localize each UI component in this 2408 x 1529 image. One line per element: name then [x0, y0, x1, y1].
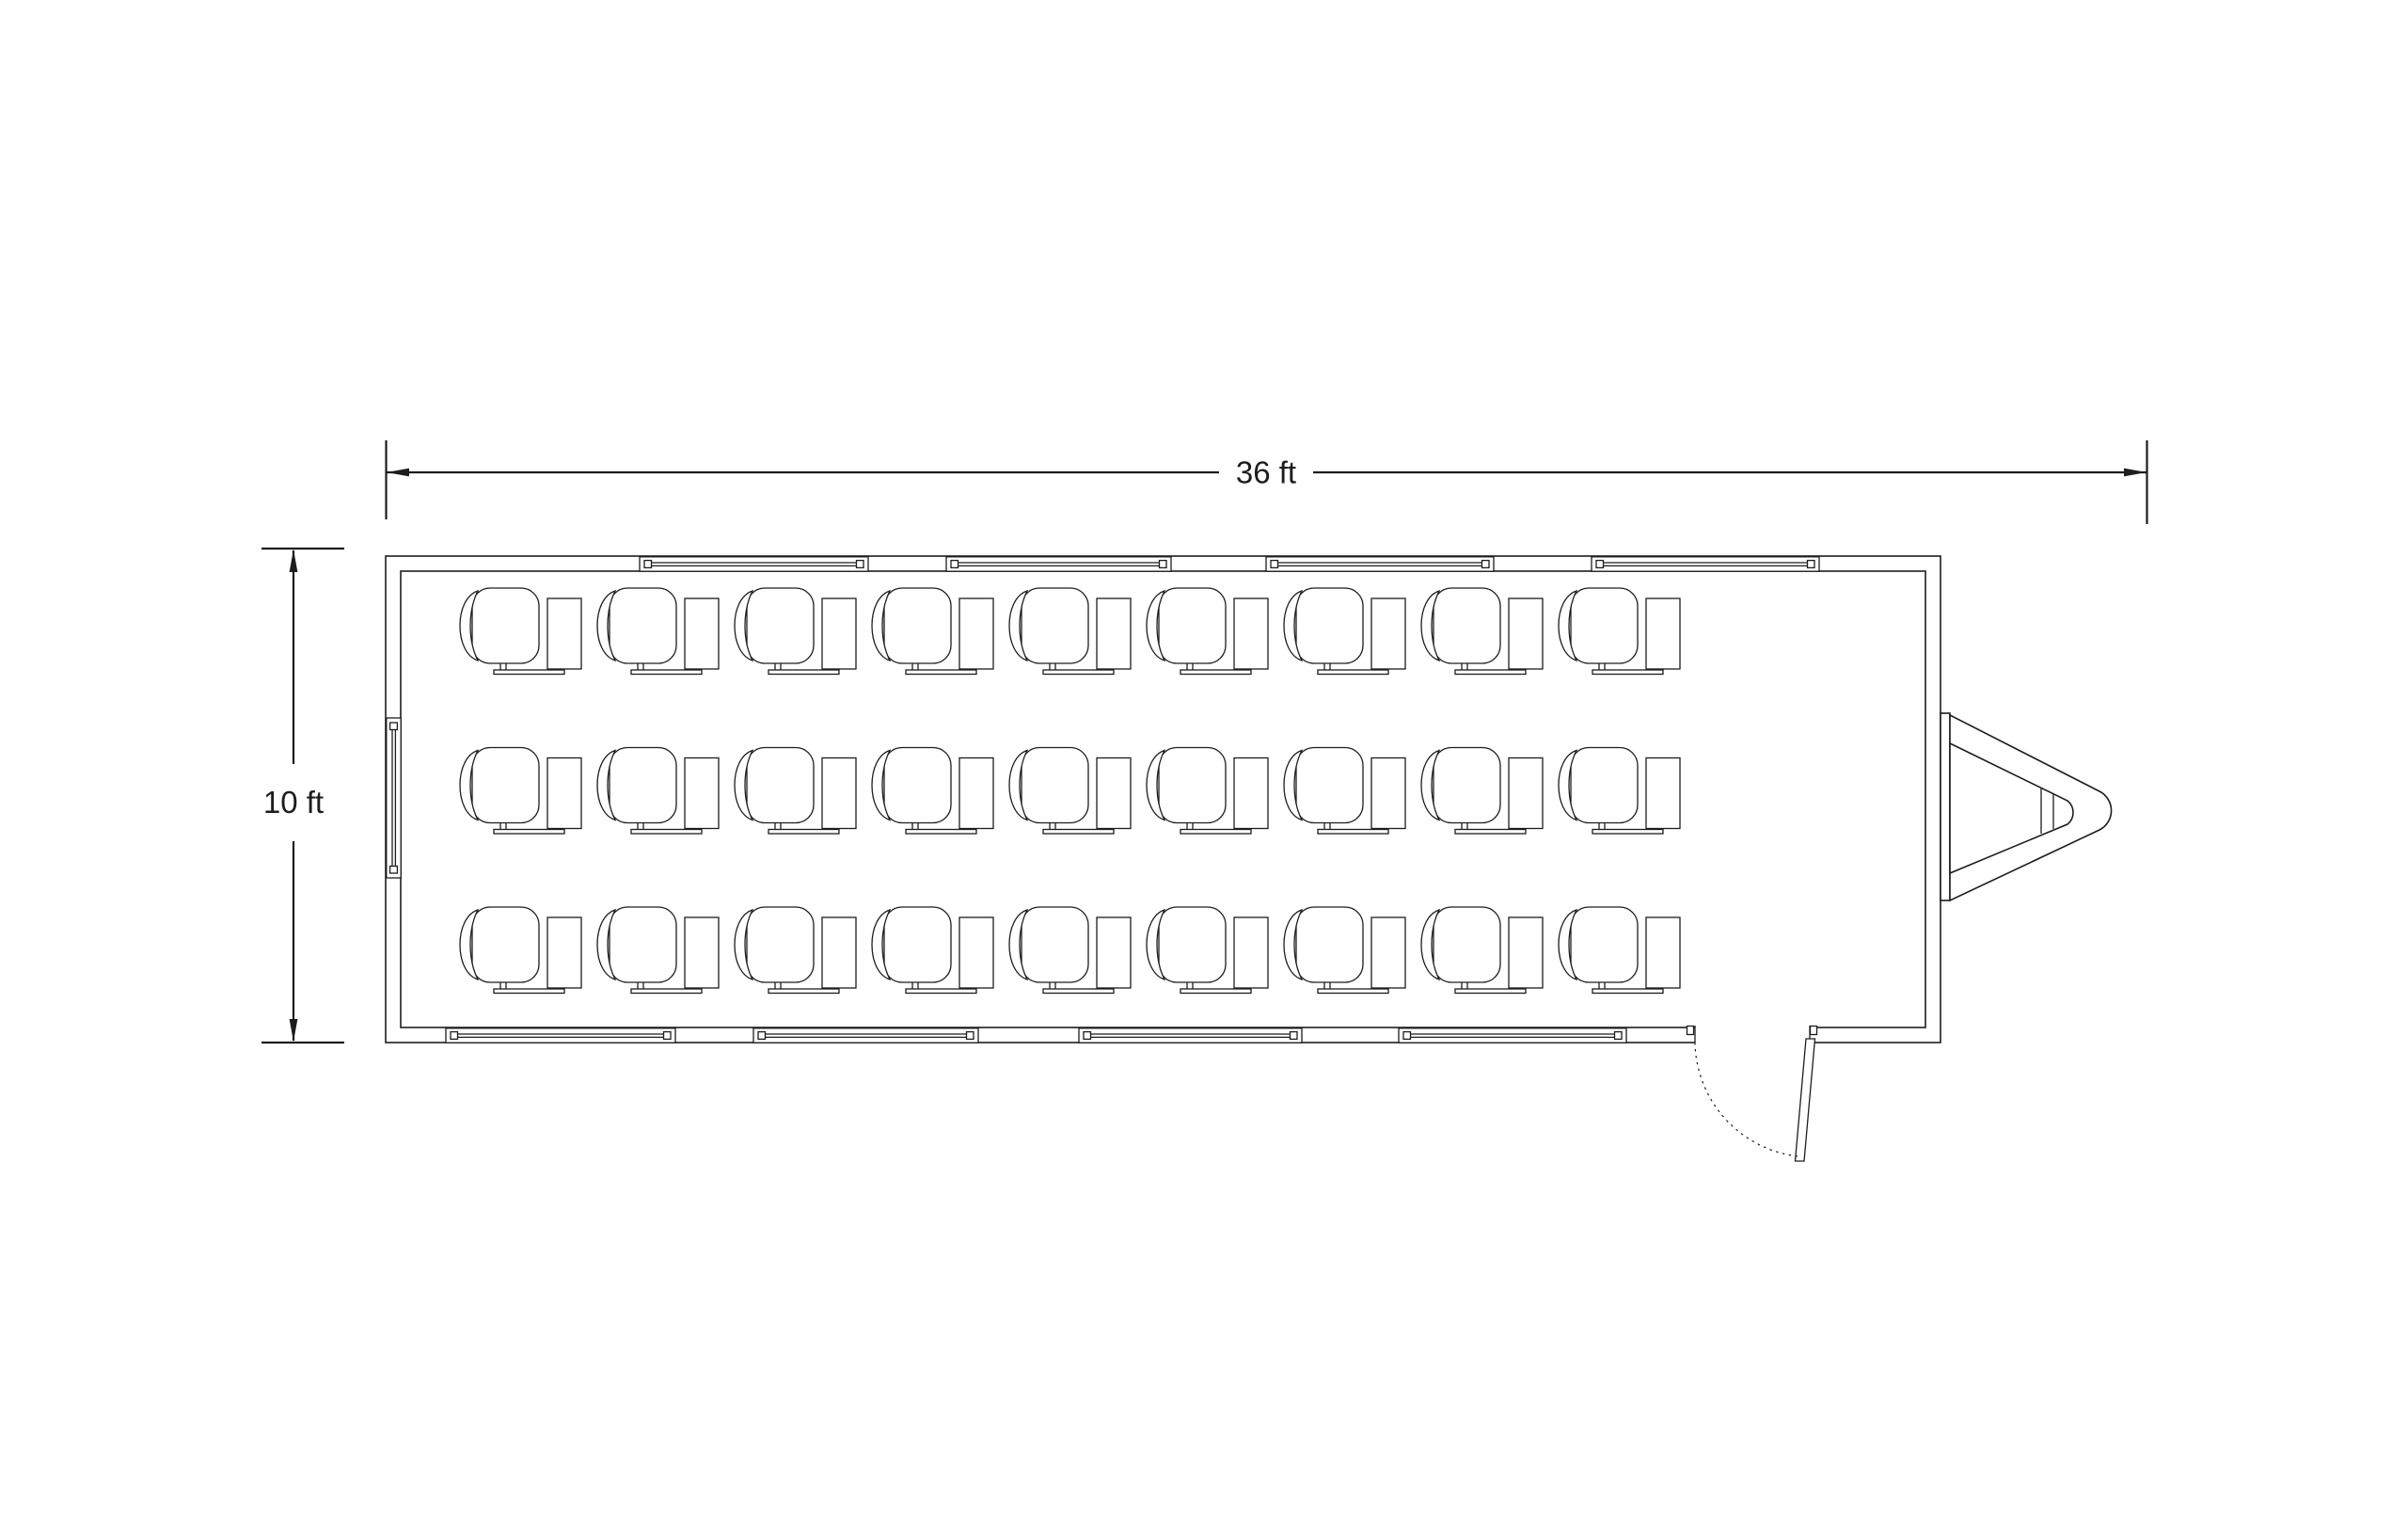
desk-unit-r3-c6 [1147, 907, 1268, 994]
desk-unit-r1-c9 [1559, 588, 1680, 675]
window-top-2-cap-right [1160, 561, 1167, 568]
window-left-1 [387, 718, 401, 878]
window-bottom-1-cap-left [451, 1032, 458, 1040]
desk-unit-r3-c8 [1421, 907, 1543, 994]
window-top-3 [1266, 557, 1494, 571]
height-dimension: 10 ft [261, 549, 344, 1043]
door-opening [1695, 1025, 1810, 1045]
height-dimension-label: 10 ft [263, 785, 324, 820]
door-stop-left [1687, 1027, 1694, 1035]
window-bottom-2-cap-right [967, 1032, 974, 1040]
desk-unit-r2-c1 [460, 748, 581, 835]
floor-plan-canvas: 36 ft 10 ft [0, 0, 2408, 1529]
window-bottom-1-cap-right [664, 1032, 672, 1040]
desk-unit-r1-c4 [872, 588, 993, 675]
window-top-1-cap-left [644, 561, 652, 568]
desk-unit-r3-c7 [1284, 907, 1405, 994]
arrow-up-icon [290, 549, 298, 572]
desk-unit-r1-c3 [735, 588, 856, 675]
door-swing-arc [1695, 1043, 1798, 1156]
window-top-1 [640, 557, 868, 571]
desk-unit-r3-c3 [735, 907, 856, 994]
desk-unit-r2-c3 [735, 748, 856, 835]
desk-unit-r3-c2 [597, 907, 719, 994]
window-left-1-cap-bottom [390, 867, 398, 874]
window-bottom-2-cap-left [758, 1032, 766, 1040]
window-bottom-1-frame [446, 1028, 675, 1043]
window-top-3-cap-left [1271, 561, 1278, 568]
trailer-hitch [1941, 713, 2112, 900]
window-top-1-frame [640, 557, 868, 571]
window-bottom-4 [1399, 1028, 1626, 1043]
width-dimension: 36 ft [387, 440, 2147, 524]
desk-unit-r3-c5 [1009, 907, 1131, 994]
window-bottom-4-cap-left [1403, 1032, 1411, 1040]
door-stop-right [1811, 1027, 1817, 1035]
desk-unit-r2-c2 [597, 748, 719, 835]
window-bottom-3-cap-left [1084, 1032, 1091, 1040]
desk-unit-r2-c9 [1559, 748, 1680, 835]
window-bottom-3-cap-right [1291, 1032, 1298, 1040]
desk-unit-r2-c6 [1147, 748, 1268, 835]
desk-unit-r3-c9 [1559, 907, 1680, 994]
arrow-left-icon [387, 469, 409, 477]
window-top-4-cap-left [1596, 561, 1604, 568]
window-bottom-2 [753, 1028, 978, 1043]
window-top-2-cap-left [951, 561, 958, 568]
window-bottom-1 [446, 1028, 675, 1043]
window-left-1-frame [387, 718, 401, 878]
window-top-4-cap-right [1808, 561, 1815, 568]
desk-unit-r1-c8 [1421, 588, 1543, 675]
window-top-4-frame [1592, 557, 1819, 571]
desk-unit-r1-c6 [1147, 588, 1268, 675]
window-top-1-cap-right [857, 561, 864, 568]
arrow-right-icon [2124, 469, 2147, 477]
window-bottom-4-frame [1399, 1028, 1626, 1043]
window-top-2 [946, 557, 1171, 571]
entry-door [1687, 1025, 1817, 1161]
desk-unit-r2-c5 [1009, 748, 1131, 835]
desk-unit-r2-c4 [872, 748, 993, 835]
window-bottom-3 [1079, 1028, 1302, 1043]
window-bottom-2-frame [753, 1028, 978, 1043]
window-bottom-3-frame [1079, 1028, 1302, 1043]
desk-unit-r1-c7 [1284, 588, 1405, 675]
width-dimension-label: 36 ft [1236, 455, 1296, 490]
door-leaf [1796, 1039, 1815, 1161]
desk-unit-r1-c5 [1009, 588, 1131, 675]
desk-unit-r1-c2 [597, 588, 719, 675]
window-left-1-cap-top [390, 723, 398, 730]
window-top-2-frame [946, 557, 1171, 571]
desk-grid [460, 588, 1680, 994]
hitch-mount-plate [1941, 713, 1950, 900]
window-top-4 [1592, 557, 1819, 571]
window-top-3-cap-right [1482, 561, 1490, 568]
window-top-3-frame [1266, 557, 1494, 571]
arrow-down-icon [290, 1019, 298, 1042]
desk-unit-r3-c1 [460, 907, 581, 994]
window-bottom-4-cap-right [1615, 1032, 1623, 1040]
desk-unit-r1-c1 [460, 588, 581, 675]
desk-unit-r2-c7 [1284, 748, 1405, 835]
desk-unit-r3-c4 [872, 907, 993, 994]
desk-unit-r2-c8 [1421, 748, 1543, 835]
